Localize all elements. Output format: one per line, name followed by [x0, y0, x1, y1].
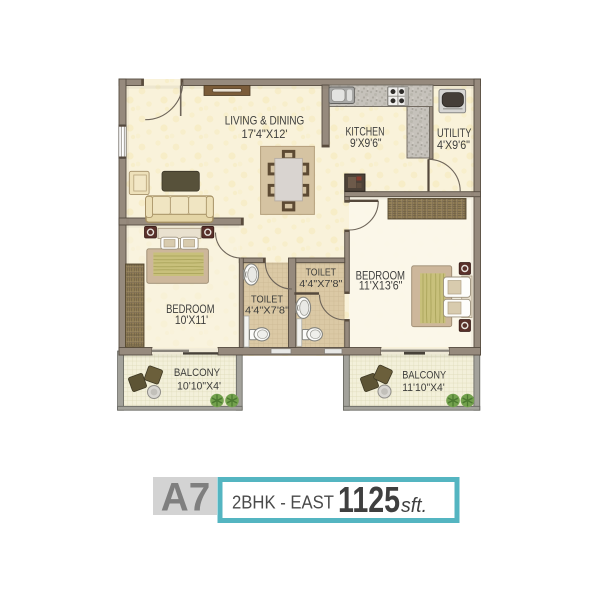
svg-text:4'4"X7'8": 4'4"X7'8": [299, 279, 342, 290]
svg-text:4'4"X7'8": 4'4"X7'8": [245, 306, 289, 317]
svg-text:TOILET: TOILET: [251, 295, 283, 306]
svg-text:11'10"X4': 11'10"X4': [402, 382, 445, 394]
svg-text:10'X11': 10'X11': [175, 314, 208, 327]
svg-text:sft.: sft.: [401, 495, 427, 517]
svg-text:BALCONY: BALCONY: [174, 367, 221, 379]
svg-text:9'X9'6": 9'X9'6": [350, 136, 382, 150]
svg-text:10'10"X4': 10'10"X4': [177, 380, 221, 392]
svg-text:LIVING & DINING: LIVING & DINING: [225, 114, 305, 128]
svg-text:17'4"X12': 17'4"X12': [242, 127, 288, 141]
svg-text:2BHK - EAST: 2BHK - EAST: [232, 492, 334, 513]
svg-text:A7: A7: [161, 476, 211, 520]
svg-text:11'X13'6": 11'X13'6": [359, 280, 403, 293]
svg-text:1125: 1125: [338, 479, 400, 520]
svg-text:4'X9'6": 4'X9'6": [437, 138, 470, 152]
svg-text:BALCONY: BALCONY: [402, 369, 446, 381]
svg-text:TOILET: TOILET: [306, 268, 336, 279]
